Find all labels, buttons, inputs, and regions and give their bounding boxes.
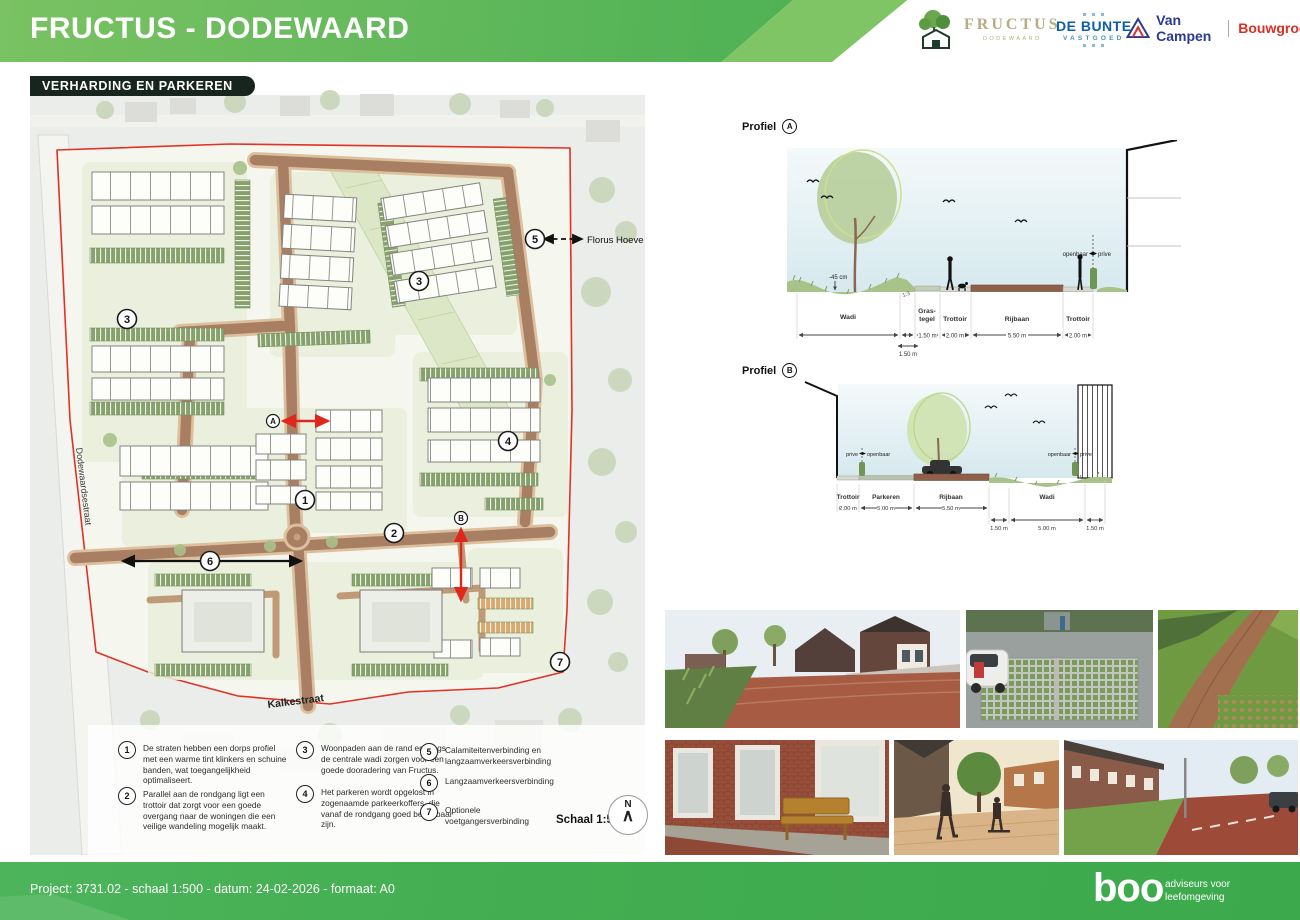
profile-b-letter: B	[782, 363, 797, 378]
debunte-logo-name: DE BUNTE	[1056, 18, 1132, 34]
svg-text:5.50 m: 5.50 m	[942, 506, 960, 512]
callout-5: 5	[526, 230, 545, 249]
svg-text:3: 3	[124, 314, 130, 326]
fructus-tree-house-icon	[915, 7, 957, 51]
vancampen-triangle-icon	[1126, 13, 1150, 43]
svg-text:2: 2	[391, 528, 397, 540]
photo-street-red-asphalt	[1064, 740, 1298, 855]
legend-num-5: 5	[420, 743, 438, 761]
svg-text:1.50 m: 1.50 m	[899, 352, 917, 358]
svg-text:Wadi: Wadi	[1039, 494, 1054, 501]
profile-b-right-building	[1078, 385, 1112, 478]
debunte-dots	[1056, 13, 1132, 16]
svg-text:2.00 m: 2.00 m	[839, 506, 857, 512]
vancampen-logo-sub: Bouwgroep	[1238, 20, 1300, 36]
callout-3-west: 3	[118, 310, 137, 329]
legend-text-6: Langzaamverkeersverbinding	[445, 774, 554, 787]
legend-text-2: Parallel aan de rondgang ligt een trotto…	[143, 787, 290, 832]
svg-text:prive: prive	[846, 452, 858, 458]
project-info: Project: 3731.02 - schaal 1:500 - datum:…	[30, 882, 395, 896]
legend-num-1: 1	[118, 741, 136, 759]
svg-text:Rijbaan: Rijbaan	[939, 494, 963, 501]
photo-grass-paver-parking	[966, 610, 1153, 728]
legend-item-5: 5 Calamiteitenverbinding en langzaamverk…	[420, 743, 556, 767]
legend-num-2: 2	[118, 787, 136, 805]
debunte-dots-bottom	[1056, 44, 1132, 47]
profile-b-segment-labels: Trottoir Parkeren Rijbaan Wadi	[837, 494, 1055, 501]
roundabout	[285, 525, 309, 549]
svg-text:Wadi: Wadi	[840, 314, 856, 321]
marker-a: A	[267, 415, 280, 428]
callout-4: 4	[499, 432, 518, 451]
callout-7: 7	[551, 653, 570, 672]
svg-text:3: 3	[416, 276, 422, 288]
legend-num-6: 6	[420, 774, 438, 792]
legend-num-3: 3	[296, 741, 314, 759]
profile-b-left-building	[805, 382, 837, 478]
site-plan-map: Dodewaardsestraat Kalkestraat Florus Hoe…	[30, 80, 645, 855]
profile-a-drawing: openbaar prive -45 cm 1:3 Wadi Gras- teg…	[785, 140, 1183, 365]
boo-tagline: adviseurs voor leefomgeving	[1165, 878, 1230, 904]
svg-text:Rijbaan: Rijbaan	[1005, 316, 1030, 323]
legend-num-7: 7	[420, 803, 438, 821]
svg-text:openbaar: openbaar	[1063, 252, 1088, 258]
legend-num-4: 4	[296, 785, 314, 803]
vancampen-divider	[1228, 20, 1229, 37]
profile-a-letter: A	[782, 119, 797, 134]
page-title: FRUCTUS - DODEWAARD	[30, 12, 409, 46]
svg-text:1.50 m: 1.50 m	[1086, 526, 1104, 532]
legend-item-1: 1 De straten hebben een dorps profiel me…	[118, 741, 290, 786]
svg-text:7: 7	[557, 657, 563, 669]
svg-text:Parkeren: Parkeren	[872, 494, 900, 501]
svg-text:6: 6	[207, 556, 213, 568]
svg-text:5.00 m: 5.00 m	[877, 506, 895, 512]
wadi-depth-label: -45 cm	[829, 275, 847, 281]
svg-text:openbaar: openbaar	[867, 452, 890, 458]
north-arrow: N ∧	[608, 795, 648, 835]
vancampen-logo: Van Campen Bouwgroep	[1126, 12, 1300, 44]
photo-green-verge-path	[1158, 610, 1298, 728]
slope-label: 1:3	[902, 291, 911, 299]
svg-text:5.50 m: 5.50 m	[1008, 334, 1026, 340]
svg-text:2.00 m: 2.00 m	[946, 334, 964, 340]
boo-logo: boo	[1093, 866, 1163, 911]
svg-text:1.50 m: 1.50 m	[990, 526, 1008, 532]
svg-text:tegel: tegel	[919, 316, 935, 323]
callout-3-north: 3	[410, 272, 429, 291]
svg-text:2.00 m: 2.00 m	[1069, 334, 1087, 340]
profile-a-label: Profiel A	[742, 119, 797, 134]
site-plan-svg: Dodewaardsestraat Kalkestraat Florus Hoe…	[30, 80, 645, 855]
profile-a-building	[1127, 140, 1181, 292]
legend-item-2: 2 Parallel aan de rondgang ligt een trot…	[118, 787, 290, 832]
svg-text:B: B	[458, 514, 464, 523]
svg-text:5: 5	[532, 234, 538, 246]
callout-2: 2	[385, 524, 404, 543]
svg-text:Trottoir: Trottoir	[837, 494, 860, 501]
profile-a-segment-labels: Wadi Gras- tegel Trottoir Rijbaan Trotto…	[840, 308, 1090, 323]
legend-text-7: Optionele voetgangersverbinding	[445, 803, 560, 827]
legend-item-6: 6 Langzaamverkeersverbinding	[420, 774, 556, 792]
svg-text:openbaar: openbaar	[1048, 452, 1071, 458]
legend-text-1: De straten hebben een dorps profiel met …	[143, 741, 290, 786]
debunte-logo-sub: VASTGOED	[1056, 35, 1132, 42]
photo-street-brick-paving	[665, 610, 960, 728]
photo-facade-with-bench	[665, 740, 889, 855]
florus-hoeve-label: Florus Hoeve	[587, 235, 644, 246]
photo-children-playing-street	[894, 740, 1059, 855]
footer-bar: Project: 3731.02 - schaal 1:500 - datum:…	[0, 862, 1300, 920]
callout-1: 1	[296, 491, 315, 510]
svg-text:A: A	[270, 417, 276, 426]
legend-text-5: Calamiteitenverbinding en langzaamverkee…	[445, 743, 556, 767]
fructus-logo: FRUCTUS DODEWAARD	[915, 7, 1061, 51]
svg-text:5.00 m: 5.00 m	[1038, 526, 1056, 532]
profile-b-label: Profiel B	[742, 363, 797, 378]
svg-text:prive: prive	[1080, 452, 1092, 458]
fructus-logo-sub: DODEWAARD	[964, 36, 1061, 42]
svg-text:1: 1	[302, 495, 308, 507]
debunte-logo: DE BUNTE VASTGOED	[1056, 11, 1132, 49]
profile-b-drawing: prive openbaar openbaar prive Trottoir P…	[795, 378, 1130, 548]
svg-text:Trottoir: Trottoir	[1066, 316, 1090, 323]
presentation-board: FRUCTUS - DODEWAARD FRUCTUS DODEWAARD DE…	[0, 0, 1300, 920]
north-chevron-icon: ∧	[609, 810, 647, 822]
fructus-logo-name: FRUCTUS	[964, 16, 1061, 34]
svg-text:Gras-: Gras-	[918, 308, 936, 315]
svg-text:4: 4	[505, 436, 512, 448]
svg-text:prive: prive	[1098, 252, 1112, 258]
svg-text:1.50 m: 1.50 m	[918, 334, 936, 340]
svg-text:Trottoir: Trottoir	[943, 316, 967, 323]
map-title-badge: VERHARDING EN PARKEREN	[30, 76, 255, 96]
header-bar: FRUCTUS - DODEWAARD FRUCTUS DODEWAARD DE…	[0, 0, 1300, 62]
profile-b-dim-ticks	[837, 480, 1105, 524]
callout-6: 6	[201, 552, 220, 571]
legend-item-7: 7 Optionele voetgangersverbinding	[420, 803, 560, 827]
vancampen-logo-name: Van Campen	[1156, 12, 1219, 44]
marker-b: B	[455, 512, 468, 525]
